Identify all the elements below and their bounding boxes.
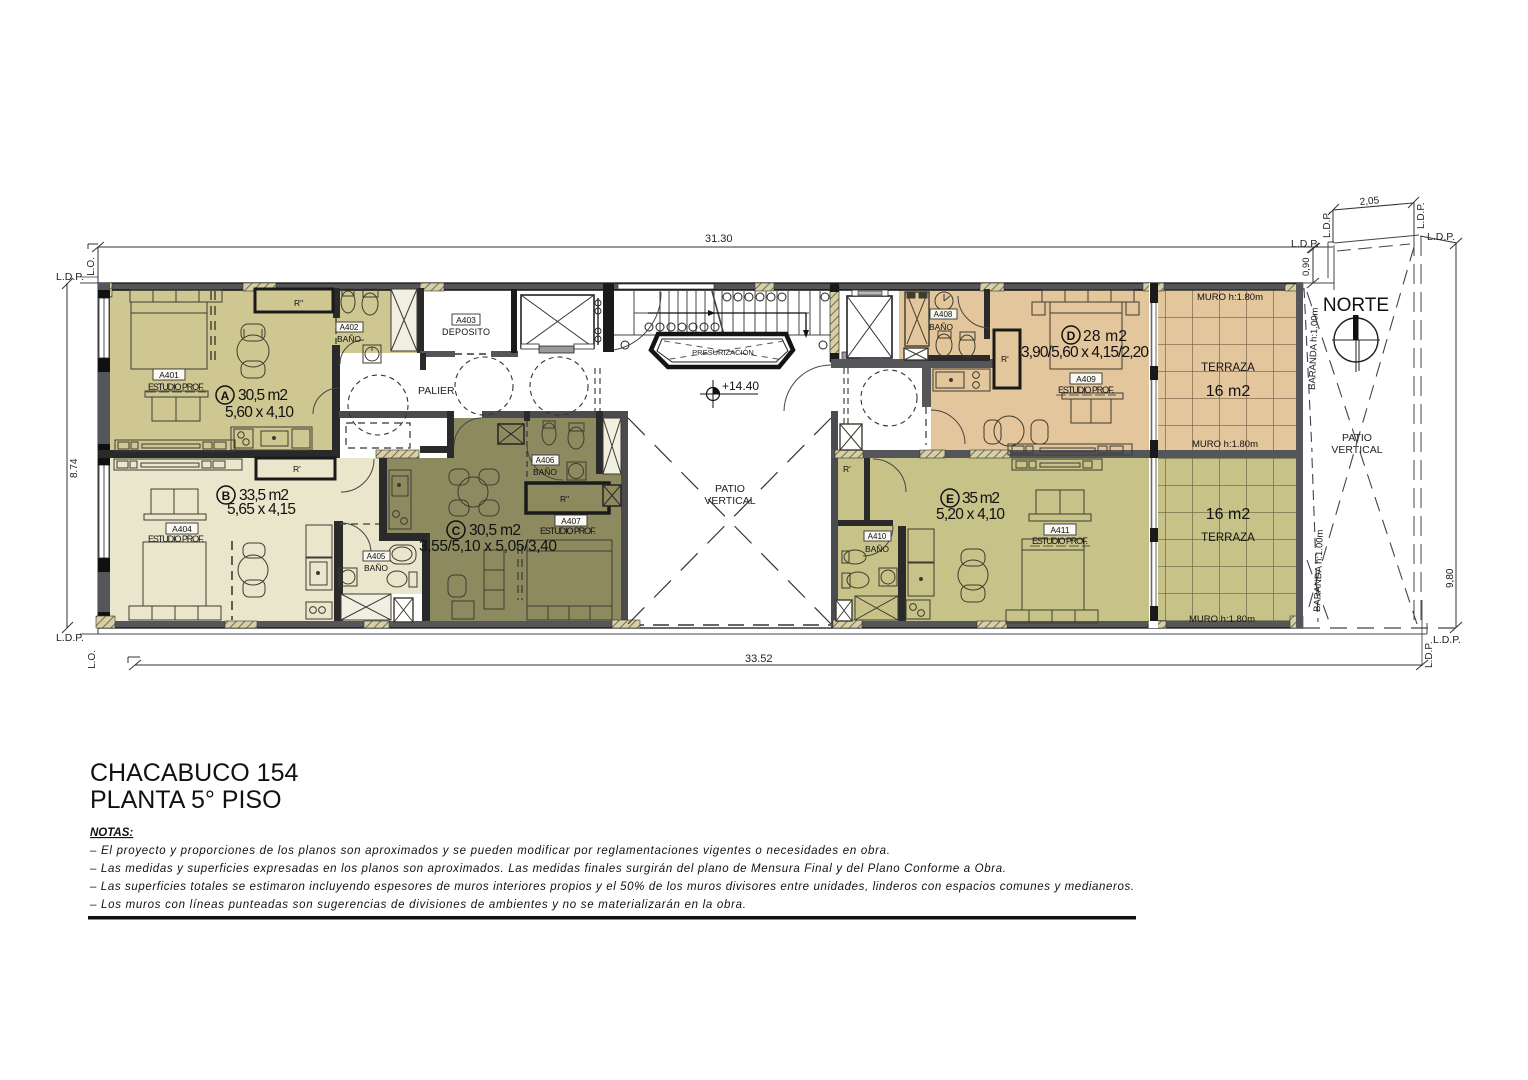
svg-text:PLANTA 5° PISO: PLANTA 5° PISO (90, 786, 282, 814)
svg-text:MURO h:1.80m: MURO h:1.80m (1197, 292, 1263, 303)
svg-text:L.D.P.: L.D.P. (1433, 634, 1461, 646)
svg-text:9,80: 9,80 (1445, 568, 1456, 588)
svg-text:BAÑO: BAÑO (337, 334, 361, 344)
svg-text:BAÑO: BAÑO (865, 544, 889, 554)
svg-text:R': R' (843, 464, 851, 474)
svg-text:ESTUDIO PROF.: ESTUDIO PROF. (540, 526, 596, 536)
svg-text:L.O.: L.O. (87, 650, 98, 669)
svg-text:ESTUDIO PROF.: ESTUDIO PROF. (148, 382, 204, 392)
svg-text:A407: A407 (561, 516, 581, 526)
svg-text:30,5 m2: 30,5 m2 (469, 522, 521, 539)
svg-text:ESTUDIO PROF.: ESTUDIO PROF. (148, 534, 204, 544)
svg-text:L.D.P.: L.D.P. (1416, 203, 1427, 230)
svg-text:5,65 x 4,15: 5,65 x 4,15 (227, 501, 296, 518)
svg-text:L.D.P.: L.D.P. (1322, 212, 1333, 239)
svg-text:R': R' (293, 464, 301, 474)
svg-text:– Los muros con líneas puntea: – Los muros con líneas punteadas son sug… (89, 899, 746, 911)
svg-text:NORTE: NORTE (1323, 295, 1389, 316)
svg-text:L.D.P.: L.D.P. (56, 632, 84, 644)
svg-text:A401: A401 (159, 370, 179, 380)
svg-text:E: E (946, 492, 954, 506)
svg-text:NOTAS:: NOTAS: (90, 827, 133, 839)
svg-text:A406: A406 (536, 456, 555, 465)
svg-text:L.D.P.: L.D.P. (1427, 231, 1455, 243)
svg-text:33.52: 33.52 (745, 653, 773, 665)
svg-text:16 m2: 16 m2 (1206, 506, 1251, 523)
svg-text:A404: A404 (172, 524, 192, 534)
svg-text:A: A (221, 389, 230, 403)
svg-text:0,90: 0,90 (1301, 258, 1312, 277)
svg-text:8.74: 8.74 (69, 458, 80, 478)
svg-text:MURO h:1.80m: MURO h:1.80m (1189, 614, 1255, 625)
svg-text:PALIER: PALIER (418, 385, 455, 397)
svg-text:CHACABUCO 154: CHACABUCO 154 (90, 759, 298, 787)
svg-text:– El proyecto y proporciones: – El proyecto y proporciones de los plan… (89, 845, 890, 857)
svg-text:BAÑO: BAÑO (929, 322, 953, 332)
svg-text:3,90/5,60 x 4,15/2,20: 3,90/5,60 x 4,15/2,20 (1021, 344, 1149, 361)
svg-text:VERTICAL: VERTICAL (704, 495, 755, 507)
svg-text:– Las superficies totales se: – Las superficies totales se estimaron i… (89, 881, 1134, 893)
svg-text:A405: A405 (367, 552, 386, 561)
svg-text:3,55/5,10 x 5,05/3,40: 3,55/5,10 x 5,05/3,40 (419, 538, 557, 555)
svg-text:ESTUDIO PROF.: ESTUDIO PROF. (1058, 385, 1114, 395)
svg-text:MURO h:1.80m: MURO h:1.80m (1192, 439, 1258, 450)
svg-text:BAÑO: BAÑO (364, 563, 388, 573)
svg-text:PATIO: PATIO (1342, 432, 1372, 444)
svg-text:C: C (452, 524, 461, 538)
svg-text:2,05: 2,05 (1359, 195, 1380, 208)
svg-text:R": R" (294, 298, 303, 308)
svg-text:PRESURIZACIÓN: PRESURIZACIÓN (692, 348, 754, 357)
svg-text:ESTUDIO PROF.: ESTUDIO PROF. (1032, 536, 1088, 546)
svg-text:TERRAZA: TERRAZA (1201, 362, 1255, 374)
svg-text:BAÑO: BAÑO (533, 467, 557, 477)
svg-text:5,60 x 4,10: 5,60 x 4,10 (225, 404, 294, 421)
svg-text:A403: A403 (456, 315, 476, 325)
svg-text:A411: A411 (1050, 525, 1069, 535)
svg-text:PATIO: PATIO (715, 483, 745, 495)
svg-text:VERTICAL: VERTICAL (1331, 444, 1382, 456)
svg-text:A409: A409 (1076, 374, 1096, 384)
svg-text:35 m2: 35 m2 (962, 490, 1000, 507)
svg-text:R": R" (560, 494, 569, 504)
svg-text:A410: A410 (868, 532, 887, 541)
svg-text:30,5 m2: 30,5 m2 (238, 387, 288, 404)
svg-text:A402: A402 (340, 323, 359, 332)
svg-text:D: D (1067, 329, 1076, 343)
svg-text:L.O.: L.O. (86, 257, 97, 276)
svg-text:R': R' (1001, 354, 1009, 364)
svg-text:5,20 x 4,10: 5,20 x 4,10 (936, 506, 1005, 523)
svg-text:28 m2: 28 m2 (1083, 328, 1127, 345)
svg-text:A408: A408 (934, 310, 953, 319)
svg-text:31.30: 31.30 (705, 233, 733, 245)
svg-text:DEPOSITO: DEPOSITO (442, 327, 490, 337)
svg-text:L.D.P.: L.D.P. (1291, 238, 1319, 250)
svg-text:+14.40: +14.40 (722, 379, 759, 393)
svg-text:16 m2: 16 m2 (1206, 383, 1251, 400)
svg-text:L.D.P.: L.D.P. (1424, 642, 1435, 669)
svg-text:TERRAZA: TERRAZA (1201, 532, 1255, 544)
svg-text:– Las medidas y superficies e: – Las medidas y superficies expresadas e… (89, 863, 1006, 875)
